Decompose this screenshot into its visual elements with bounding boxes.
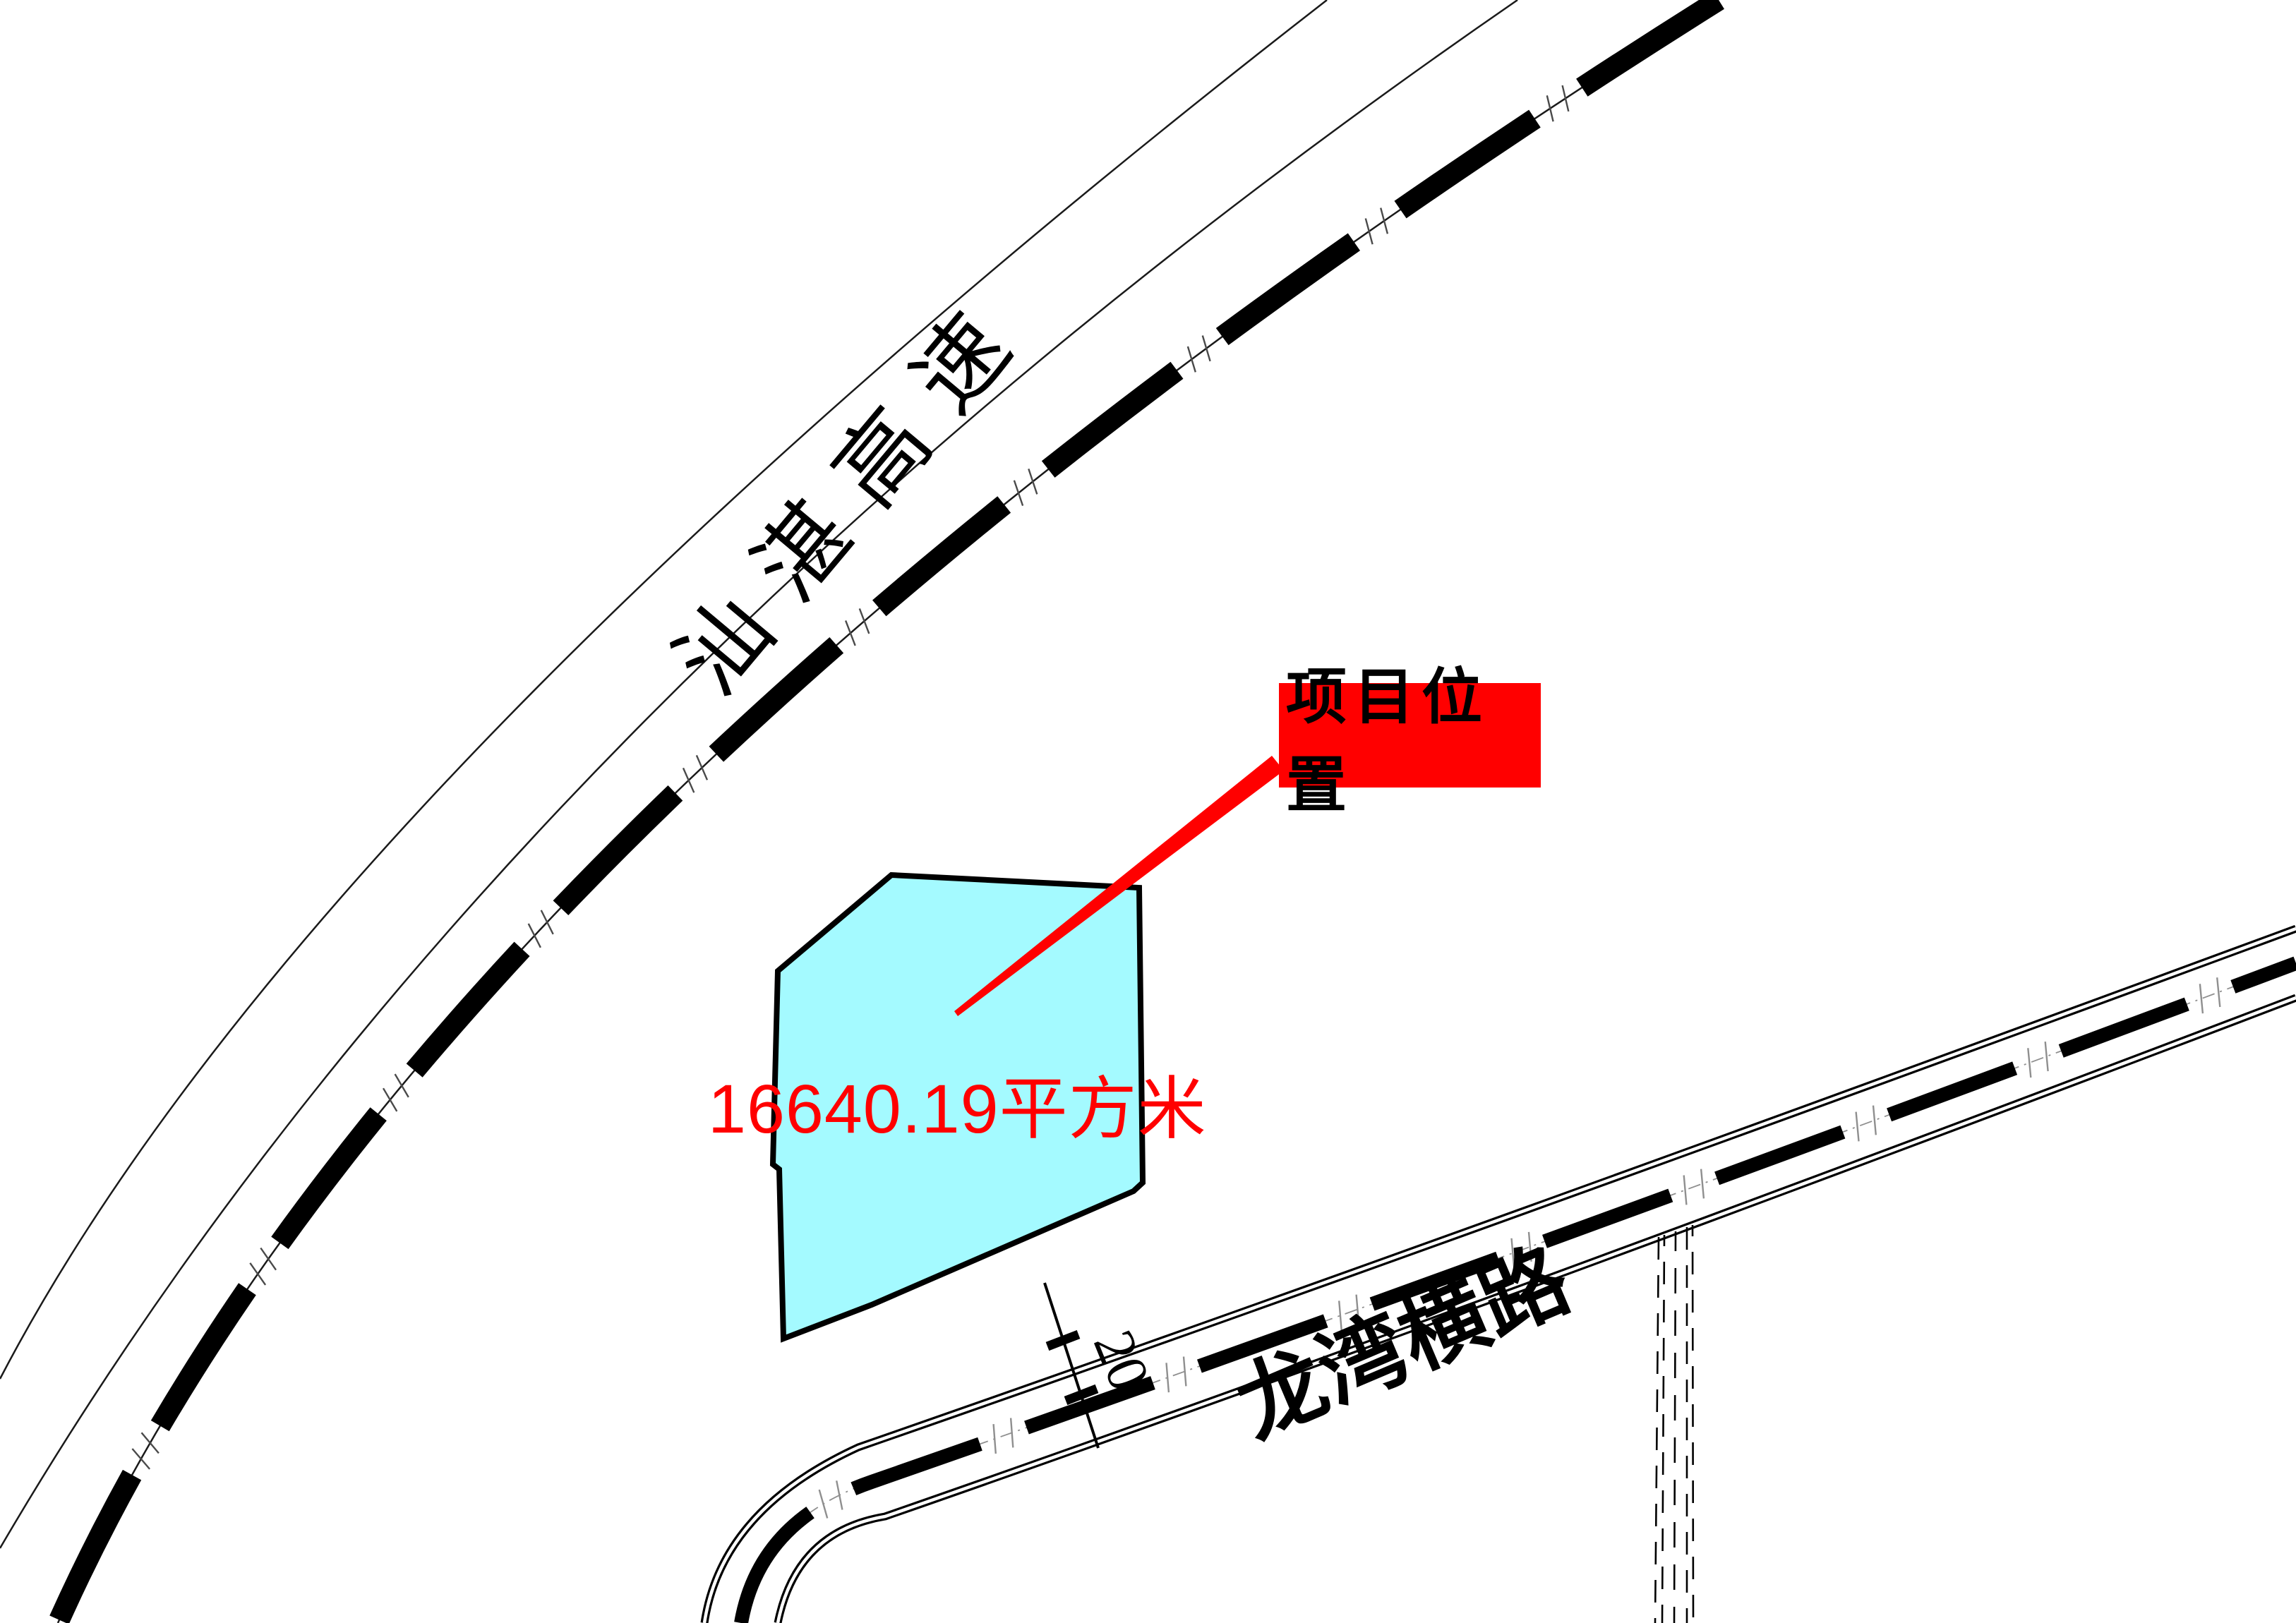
chainage-tick: [142, 1432, 159, 1453]
chainage-tick: [683, 768, 694, 792]
parcel-area-label: 16640.19平方米: [708, 1053, 1207, 1152]
project-location-callout-label: 项目位置: [1279, 647, 1541, 823]
chainage-tick: [2045, 1042, 2048, 1071]
chainage-tick: [1028, 469, 1037, 494]
utility-dashed-line: [1662, 1235, 1664, 1623]
chainage-tick: [1184, 1357, 1186, 1387]
project-location-callout: 项目位置: [1279, 683, 1541, 788]
chainage-tick: [1873, 1106, 1876, 1135]
chainage-tick: [836, 1480, 842, 1509]
chainage-tick: [529, 924, 541, 948]
chainage-tick: [1684, 1176, 1687, 1205]
utility-dashed-lines: [1655, 1225, 1693, 1623]
chainage-tick: [2217, 977, 2220, 1007]
utility-dashed-line: [1693, 1225, 1693, 1623]
utility-dashed-line: [1674, 1231, 1676, 1623]
chainage-tick: [1014, 481, 1023, 506]
site-location-map: 汕湛高速 龙湾横路 16640.19平方米 20 项目位置: [0, 0, 2296, 1623]
chainage-tick: [132, 1449, 150, 1469]
chainage-tick: [1366, 219, 1373, 245]
chainage-tick: [846, 620, 855, 646]
chainage-tick: [860, 608, 870, 634]
chainage-tick: [1167, 1363, 1169, 1392]
chainage-tick: [1381, 208, 1388, 234]
chainage-tick: [395, 1074, 409, 1097]
chainage-tick: [2200, 984, 2203, 1013]
chainage-tick: [1203, 336, 1210, 361]
chainage-tick: [697, 755, 707, 780]
chainage-tick: [1563, 85, 1569, 111]
utility-dashed-line: [1655, 1237, 1659, 1623]
chainage-tick: [1856, 1112, 1859, 1142]
chainage-tick: [819, 1490, 828, 1518]
chainage-tick: [1011, 1418, 1013, 1448]
chainage-tick: [1547, 95, 1553, 121]
chainage-tick: [383, 1088, 397, 1111]
chainage-tick: [2028, 1048, 2031, 1078]
chainage-tick: [994, 1424, 996, 1454]
chainage-tick: [1188, 346, 1196, 372]
chainage-tick: [541, 910, 553, 934]
chainage-tick: [1701, 1169, 1704, 1199]
dimension-oblique-tick: [1047, 1334, 1078, 1346]
